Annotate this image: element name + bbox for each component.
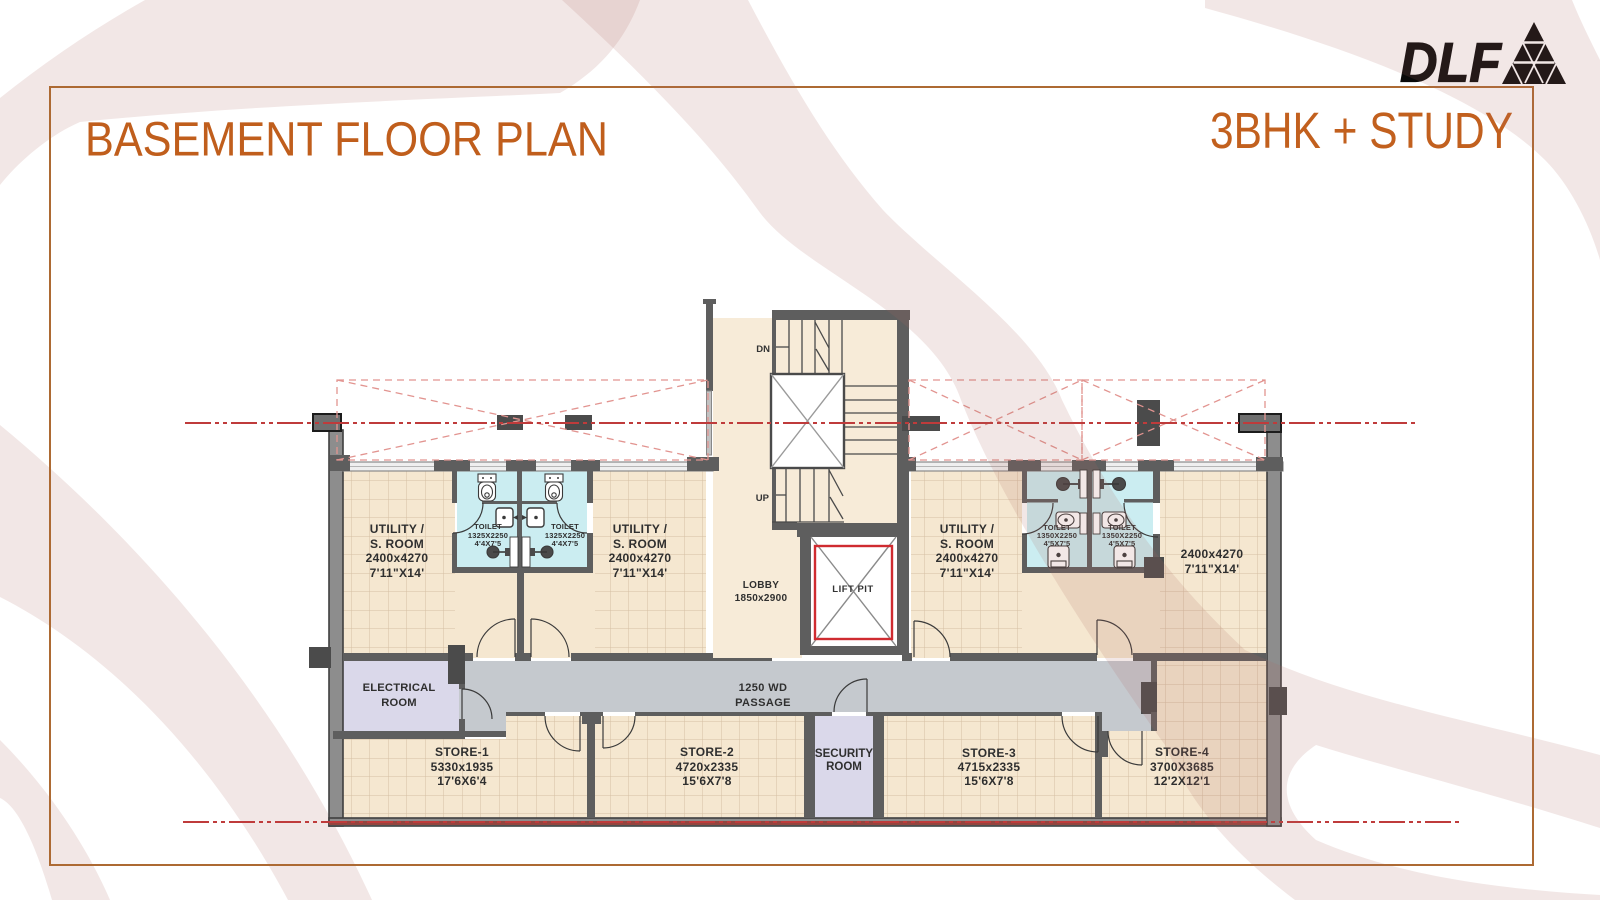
svg-text:7'11"X14': 7'11"X14' [1185,562,1240,576]
svg-text:2400x4270: 2400x4270 [366,551,429,565]
svg-text:15'6X7'8: 15'6X7'8 [964,774,1014,788]
svg-text:ELECTRICAL: ELECTRICAL [363,682,436,694]
svg-text:7'11"X14': 7'11"X14' [370,566,425,580]
svg-text:S. ROOM: S. ROOM [940,537,994,551]
svg-text:2400x4270: 2400x4270 [609,551,672,565]
svg-text:TOILET: TOILET [551,522,579,531]
svg-text:1250 WD: 1250 WD [739,682,788,694]
svg-text:BASEMENT FLOOR PLAN: BASEMENT FLOOR PLAN [85,114,608,167]
svg-text:SECURITY: SECURITY [815,748,873,760]
svg-text:ROOM: ROOM [381,697,417,709]
svg-text:ROOM: ROOM [826,761,862,773]
svg-text:3BHK + STUDY: 3BHK + STUDY [1210,102,1513,159]
svg-text:7'11"X14': 7'11"X14' [613,566,668,580]
svg-text:4'4X7'5: 4'4X7'5 [552,539,579,548]
svg-text:2400x4270: 2400x4270 [1181,547,1244,561]
svg-text:STORE-2: STORE-2 [680,745,734,759]
svg-text:17'6X6'4: 17'6X6'4 [437,774,487,788]
svg-text:UTILITY /: UTILITY / [940,522,995,536]
svg-text:LOBBY: LOBBY [743,580,780,591]
svg-text:S. ROOM: S. ROOM [370,537,424,551]
svg-text:5330x1935: 5330x1935 [431,760,494,774]
svg-text:STORE-1: STORE-1 [435,745,489,759]
svg-text:UP: UP [756,493,770,504]
svg-text:2400x4270: 2400x4270 [936,551,999,565]
svg-text:DN: DN [756,344,770,355]
svg-text:UTILITY /: UTILITY / [613,522,668,536]
svg-text:4715x2335: 4715x2335 [958,760,1021,774]
svg-text:1850x2900: 1850x2900 [735,593,788,604]
svg-text:S. ROOM: S. ROOM [613,537,667,551]
svg-text:LIFT PIT: LIFT PIT [832,584,873,595]
svg-text:4'4X7'5: 4'4X7'5 [475,539,502,548]
svg-text:TOILET: TOILET [474,522,502,531]
svg-text:15'6X7'8: 15'6X7'8 [682,774,732,788]
svg-text:STORE-3: STORE-3 [962,746,1016,760]
svg-text:PASSAGE: PASSAGE [735,697,791,709]
svg-text:7'11"X14': 7'11"X14' [940,566,995,580]
svg-text:UTILITY /: UTILITY / [370,522,425,536]
svg-text:4720x2335: 4720x2335 [676,760,739,774]
